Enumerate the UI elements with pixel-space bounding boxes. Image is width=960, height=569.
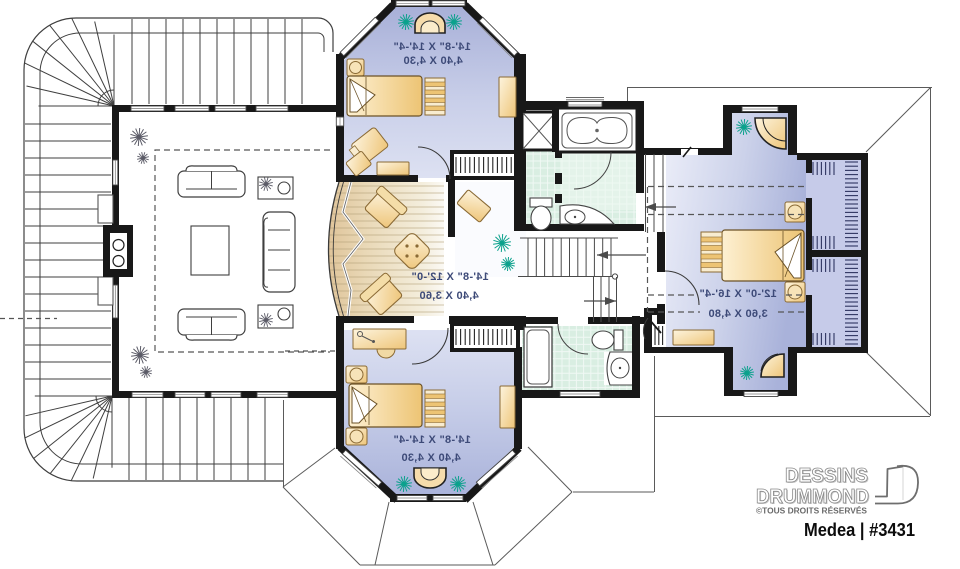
svg-text:4,40 X 4,30: 4,40 X 4,30 [403,55,463,67]
svg-text:Medea | #3431: Medea | #3431 [804,519,915,540]
svg-text:14'-8" X 14'-4": 14'-8" X 14'-4" [393,41,471,53]
svg-text:14'-8" X 12'-0": 14'-8" X 12'-0" [411,271,489,283]
svg-text:DESSINS: DESSINS [785,465,868,487]
svg-text:12'-0" X 16'-4": 12'-0" X 16'-4" [699,288,777,300]
svg-text:©TOUS DROITS RÉSERVÉS: ©TOUS DROITS RÉSERVÉS [756,506,867,516]
svg-text:14'-8" X 14'-4": 14'-8" X 14'-4" [393,434,471,446]
svg-text:3,60 X 4,80: 3,60 X 4,80 [708,308,768,320]
svg-text:4,40 X 3,60: 4,40 X 3,60 [419,290,479,302]
svg-text:4,40 X 4,30: 4,40 X 4,30 [401,452,461,464]
